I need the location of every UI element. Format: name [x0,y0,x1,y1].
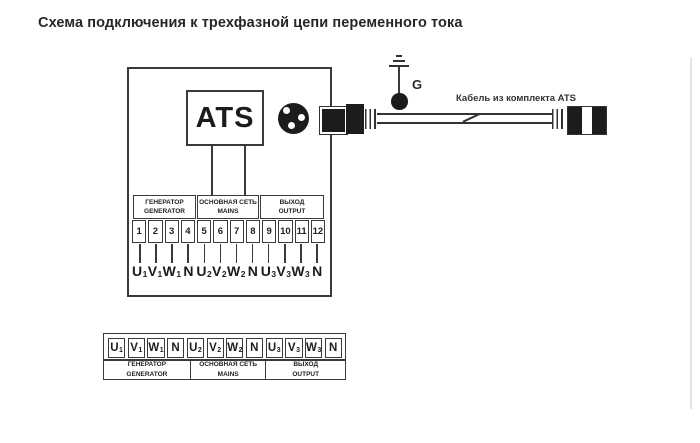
legend-cell: U3 [266,338,283,358]
terminal-label: W3 [291,261,309,281]
terminal-number-cell: 12 [311,220,325,243]
cable-plug-icon [319,106,348,135]
legend-cell: U2 [187,338,204,358]
ats-block: ATS [186,90,264,146]
section-label-en: GENERATOR [144,207,185,216]
terminal-label: N [245,261,260,281]
ground-icon [393,60,405,62]
section-label-ru: ГЕНЕРАТОР [145,198,183,207]
terminal-label: U3 [261,261,276,281]
terminal-number-cell: 2 [148,220,162,243]
legend-cell: N [167,338,184,358]
terminal-label: V1 [147,261,162,281]
section-label-ru: ВЫХОД [280,198,305,207]
cable-gland-right-icon [552,109,566,129]
connector-segment [568,107,582,134]
terminal-number-cell: 6 [213,220,227,243]
section-label-en: OUTPUT [292,370,319,379]
legend-cell: W1 [147,338,164,358]
terminal-number-cell: 10 [278,220,292,243]
terminal-section-generator: ГЕНЕРАТОР GENERATOR [133,195,196,219]
terminal-number-cell: 1 [132,220,146,243]
section-label-ru: ВЫХОД [293,360,318,369]
wiring-diagram-page: Схема подключения к трехфазной цепи пере… [0,0,700,443]
legend-section-mains: ОСНОВНАЯ СЕТЬ MAINS [190,361,266,380]
terminal-label: N [181,261,196,281]
terminal-number-row: 1 2 3 4 5 6 7 8 9 10 11 12 [132,220,325,243]
cable-kit-label: Кабель из комплекта ATS [456,93,576,104]
legend-cell: W3 [305,338,322,358]
section-label-en: MAINS [218,207,239,216]
terminal-number-cell: 8 [246,220,260,243]
terminal-section-output: ВЫХОД OUTPUT [260,195,324,219]
legend-cell-row: U1 V1 W1 N U2 V2 W2 N U3 V3 W3 N [108,338,342,358]
page-edge-line [690,57,692,409]
legend-cell: V2 [207,338,224,358]
terminal-number-cell: 5 [197,220,211,243]
section-label-ru: ОСНОВНАЯ СЕТЬ [199,360,257,369]
legend-section-row: ГЕНЕРАТОР GENERATOR ОСНОВНАЯ СЕТЬ MAINS … [104,361,345,380]
terminal-label: U2 [196,261,211,281]
ground-icon [396,55,402,57]
connector-segment [592,107,606,134]
ground-label: G [412,77,422,92]
terminal-label-row: U1 V1 W1 N U2 V2 W2 N U3 V3 W3 N [132,261,325,281]
connector-segment [582,107,592,134]
legend-cell: U1 [108,338,125,358]
terminal-label: N [310,261,325,281]
terminal-label: U1 [132,261,147,281]
section-label-ru: ГЕНЕРАТОР [128,360,166,369]
legend-cell: V3 [285,338,302,358]
legend-cell: V1 [128,338,145,358]
ats-to-mains-line-right [244,146,246,195]
legend-section-generator: ГЕНЕРАТОР GENERATOR [104,361,190,380]
ats-label: ATS [196,102,255,135]
ats-to-mains-line-left [211,146,213,195]
terminal-section-mains: ОСНОВНАЯ СЕТЬ MAINS [197,195,259,219]
socket-pin [288,122,295,129]
terminal-label: V2 [212,261,227,281]
legend-section-output: ВЫХОД OUTPUT [265,361,345,380]
ground-stem-line [398,67,400,93]
terminal-number-cell: 11 [295,220,309,243]
legend-cell: N [325,338,342,358]
cable-gland-left-icon [365,109,377,129]
terminal-label: W2 [227,261,245,281]
section-label-ru: ОСНОВНАЯ СЕТЬ [199,198,257,207]
socket-pin [283,107,290,114]
cable-connector-icon [567,106,607,135]
section-label-en: OUTPUT [279,207,306,216]
terminal-legend-table: U1 V1 W1 N U2 V2 W2 N U3 V3 W3 N ГЕНЕРАТ… [103,333,346,380]
legend-cell: W2 [226,338,243,358]
section-label-en: MAINS [218,370,239,379]
legend-cell: N [246,338,263,358]
ground-clamp-icon [391,93,408,110]
terminal-number-cell: 7 [230,220,244,243]
page-title: Схема подключения к трехфазной цепи пере… [38,15,463,31]
terminal-label: W1 [163,261,181,281]
terminal-number-cell: 3 [165,220,179,243]
socket-pin [298,114,305,121]
terminal-label: V3 [276,261,291,281]
terminal-number-cell: 4 [181,220,195,243]
terminal-number-cell: 9 [262,220,276,243]
three-pin-socket-icon [278,103,309,134]
section-label-en: GENERATOR [126,370,167,379]
cable-plug-body [346,104,364,134]
